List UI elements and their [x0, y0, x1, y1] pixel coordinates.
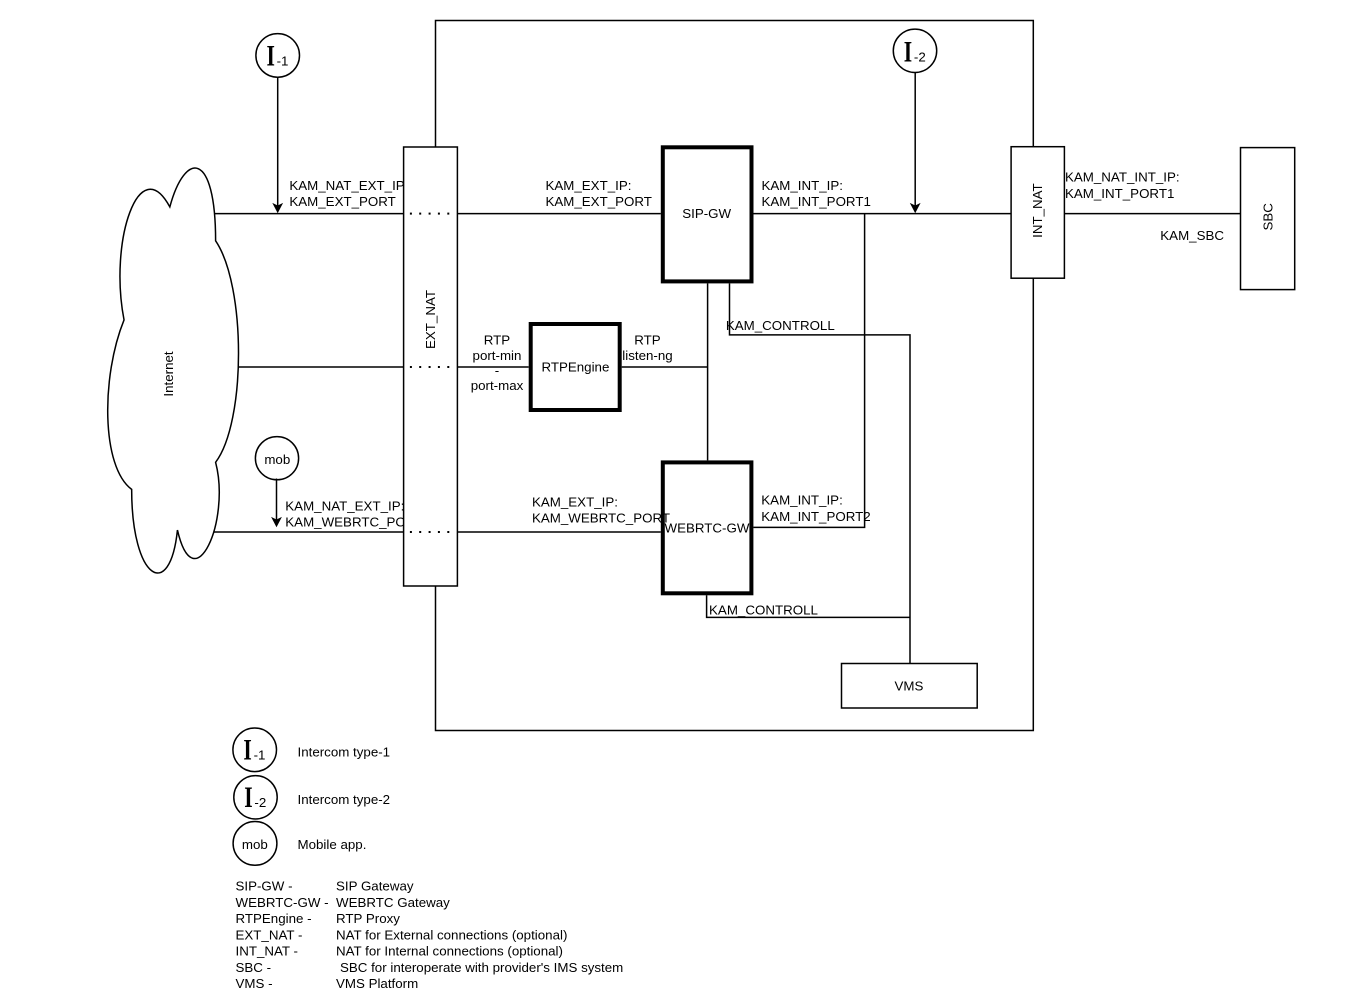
- svg-text:-: -: [495, 363, 499, 378]
- svg-text:KAM_NAT_EXT_IP:: KAM_NAT_EXT_IP:: [285, 498, 404, 513]
- svg-text:SIP-GW: SIP-GW: [682, 206, 731, 221]
- svg-text:mob: mob: [264, 452, 290, 467]
- svg-text:KAM_INT_PORT1: KAM_INT_PORT1: [1065, 186, 1174, 201]
- svg-text:KAM_INT_IP:: KAM_INT_IP:: [762, 178, 843, 193]
- svg-text:port-min: port-min: [473, 348, 522, 363]
- svg-text:KAM_WEBRTC_PORT: KAM_WEBRTC_PORT: [532, 510, 670, 525]
- svg-text:VMS -: VMS -: [236, 976, 273, 991]
- svg-text:Intercom type-1: Intercom type-1: [298, 745, 391, 760]
- svg-text:KAM_INT_IP:: KAM_INT_IP:: [761, 493, 842, 508]
- svg-text:KAM_CONTROLL: KAM_CONTROLL: [726, 318, 835, 333]
- svg-text:-2: -2: [914, 50, 926, 65]
- svg-text:SIP-GW -: SIP-GW -: [236, 879, 293, 894]
- svg-text:Internet: Internet: [161, 351, 176, 396]
- svg-text:KAM_NAT_INT_IP:: KAM_NAT_INT_IP:: [1065, 170, 1180, 185]
- svg-text:-2: -2: [254, 795, 266, 810]
- svg-text:RTP Proxy: RTP Proxy: [336, 911, 400, 926]
- svg-text:NAT for External connections (: NAT for External connections (optional): [336, 927, 567, 942]
- svg-text:WEBRTC Gateway: WEBRTC Gateway: [336, 895, 450, 910]
- svg-text:RTPEngine: RTPEngine: [541, 360, 609, 375]
- svg-text:port-max: port-max: [471, 378, 524, 393]
- svg-text:I: I: [244, 781, 252, 814]
- svg-text:Intercom type-2: Intercom type-2: [298, 792, 391, 807]
- svg-text:RTPEngine -: RTPEngine -: [236, 911, 312, 926]
- svg-text:RTP: RTP: [634, 333, 661, 348]
- svg-text:KAM_WEBRTC_PORT: KAM_WEBRTC_PORT: [285, 515, 423, 530]
- svg-text:-1: -1: [254, 748, 266, 763]
- svg-text:SBC: SBC: [1260, 203, 1275, 231]
- svg-text:KAM_SBC: KAM_SBC: [1160, 228, 1224, 243]
- svg-text:I: I: [243, 733, 251, 766]
- svg-text:VMS: VMS: [895, 679, 924, 694]
- svg-text:SIP Gateway: SIP Gateway: [336, 879, 414, 894]
- svg-text:RTP: RTP: [484, 333, 511, 348]
- svg-text:listen-ng: listen-ng: [622, 348, 672, 363]
- svg-text:SBC -: SBC -: [236, 960, 272, 975]
- svg-text:KAM_EXT_IP:: KAM_EXT_IP:: [546, 178, 632, 193]
- svg-text:I: I: [267, 39, 275, 72]
- svg-text:KAM_EXT_IP:: KAM_EXT_IP:: [532, 494, 618, 509]
- svg-text:EXT_NAT -: EXT_NAT -: [236, 927, 303, 942]
- svg-text:KAM_NAT_EXT_IP:: KAM_NAT_EXT_IP:: [289, 178, 408, 193]
- svg-text:NAT for Internal connections (: NAT for Internal connections (optional): [336, 944, 563, 959]
- svg-text:KAM_INT_PORT1: KAM_INT_PORT1: [762, 194, 871, 209]
- svg-text:Mobile app.: Mobile app.: [298, 837, 367, 852]
- svg-text:-1: -1: [277, 54, 289, 69]
- svg-text:I: I: [904, 35, 912, 68]
- svg-text:INT_NAT: INT_NAT: [1030, 183, 1045, 238]
- svg-text:KAM_CONTROLL: KAM_CONTROLL: [709, 602, 818, 617]
- svg-text:WEBRTC-GW -: WEBRTC-GW -: [236, 895, 329, 910]
- svg-text:INT_NAT -: INT_NAT -: [236, 944, 298, 959]
- svg-text:KAM_EXT_PORT: KAM_EXT_PORT: [289, 194, 395, 209]
- svg-text:WEBRTC-GW: WEBRTC-GW: [665, 521, 750, 536]
- svg-text:KAM_INT_PORT2: KAM_INT_PORT2: [761, 509, 870, 524]
- svg-text:KAM_EXT_PORT: KAM_EXT_PORT: [546, 194, 652, 209]
- svg-text:mob: mob: [242, 837, 268, 852]
- svg-text:VMS Platform: VMS Platform: [336, 976, 418, 991]
- svg-text:SBC for interoperate with prov: SBC for interoperate with provider's IMS…: [340, 960, 623, 975]
- svg-text:EXT_NAT: EXT_NAT: [423, 290, 438, 349]
